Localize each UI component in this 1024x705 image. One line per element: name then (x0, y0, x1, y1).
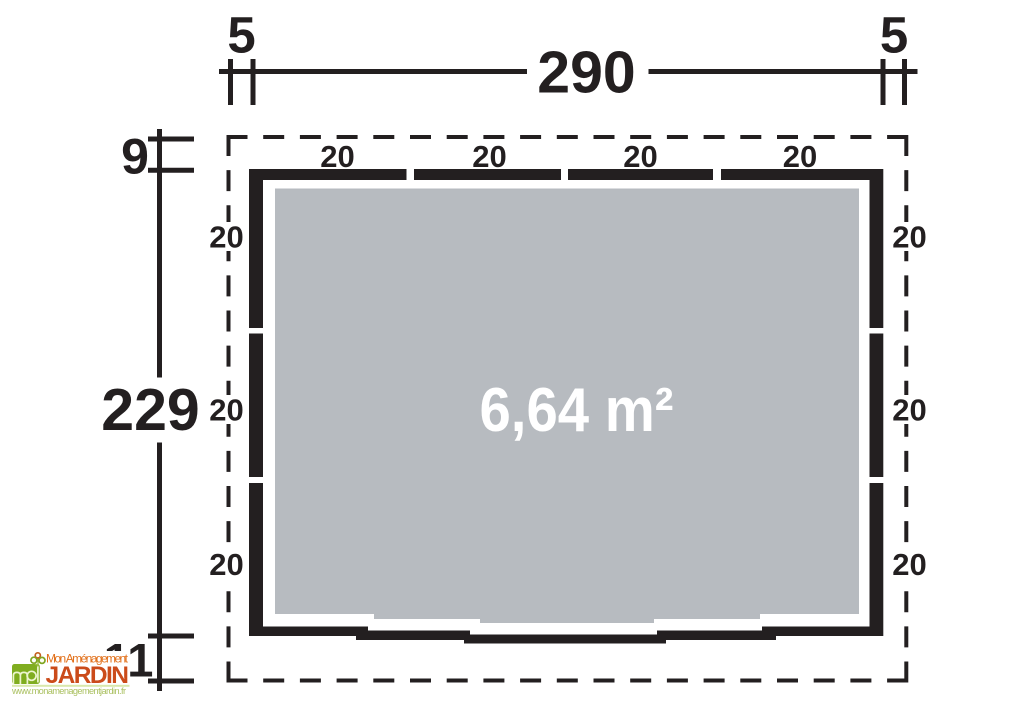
svg-text:20: 20 (623, 139, 657, 174)
svg-text:www.monamenagementjardin.fr: www.monamenagementjardin.fr (11, 686, 126, 696)
svg-text:5: 5 (880, 7, 908, 64)
svg-text:9: 9 (121, 129, 149, 185)
svg-text:20: 20 (892, 393, 926, 428)
svg-text:20: 20 (892, 547, 926, 582)
svg-text:20: 20 (209, 393, 243, 428)
svg-text:20: 20 (320, 139, 354, 174)
svg-text:20: 20 (892, 220, 926, 255)
svg-text:5: 5 (227, 7, 255, 64)
svg-text:290: 290 (537, 40, 635, 106)
svg-text:20: 20 (783, 139, 817, 174)
svg-text:6,64 m²: 6,64 m² (480, 376, 674, 445)
svg-text:20: 20 (209, 220, 243, 255)
svg-text:20: 20 (472, 139, 506, 174)
svg-text:20: 20 (209, 547, 243, 582)
svg-text:229: 229 (101, 377, 199, 443)
